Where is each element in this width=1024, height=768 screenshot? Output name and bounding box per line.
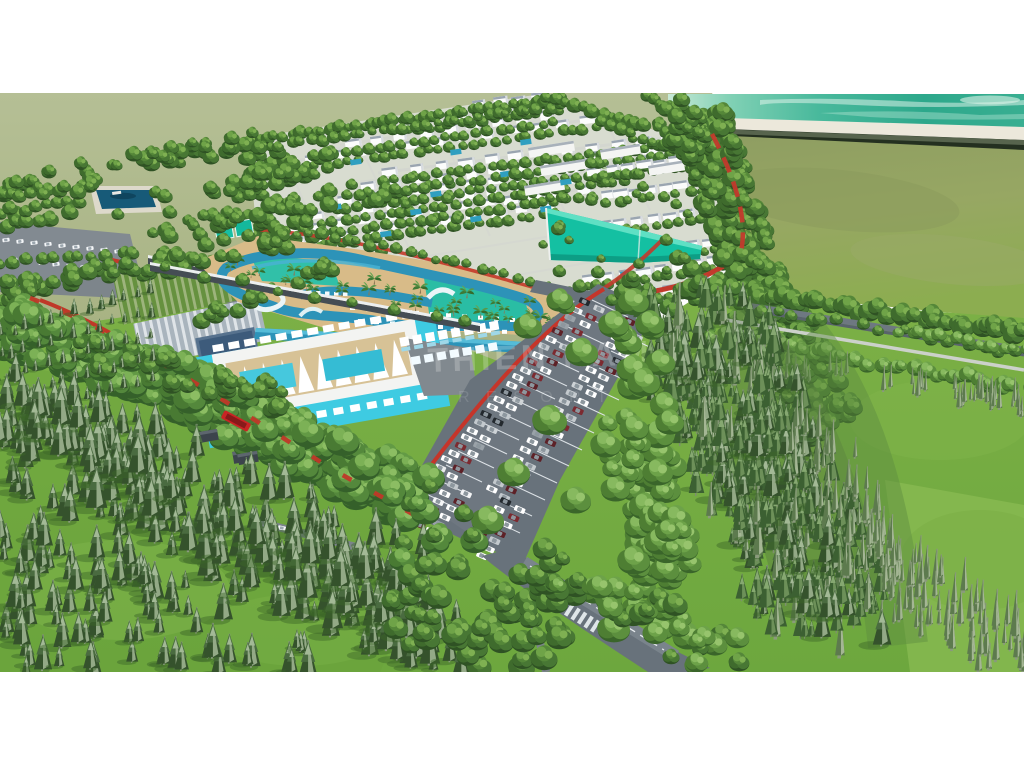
svg-text:R E S O R T: R E S O R T	[458, 389, 613, 406]
